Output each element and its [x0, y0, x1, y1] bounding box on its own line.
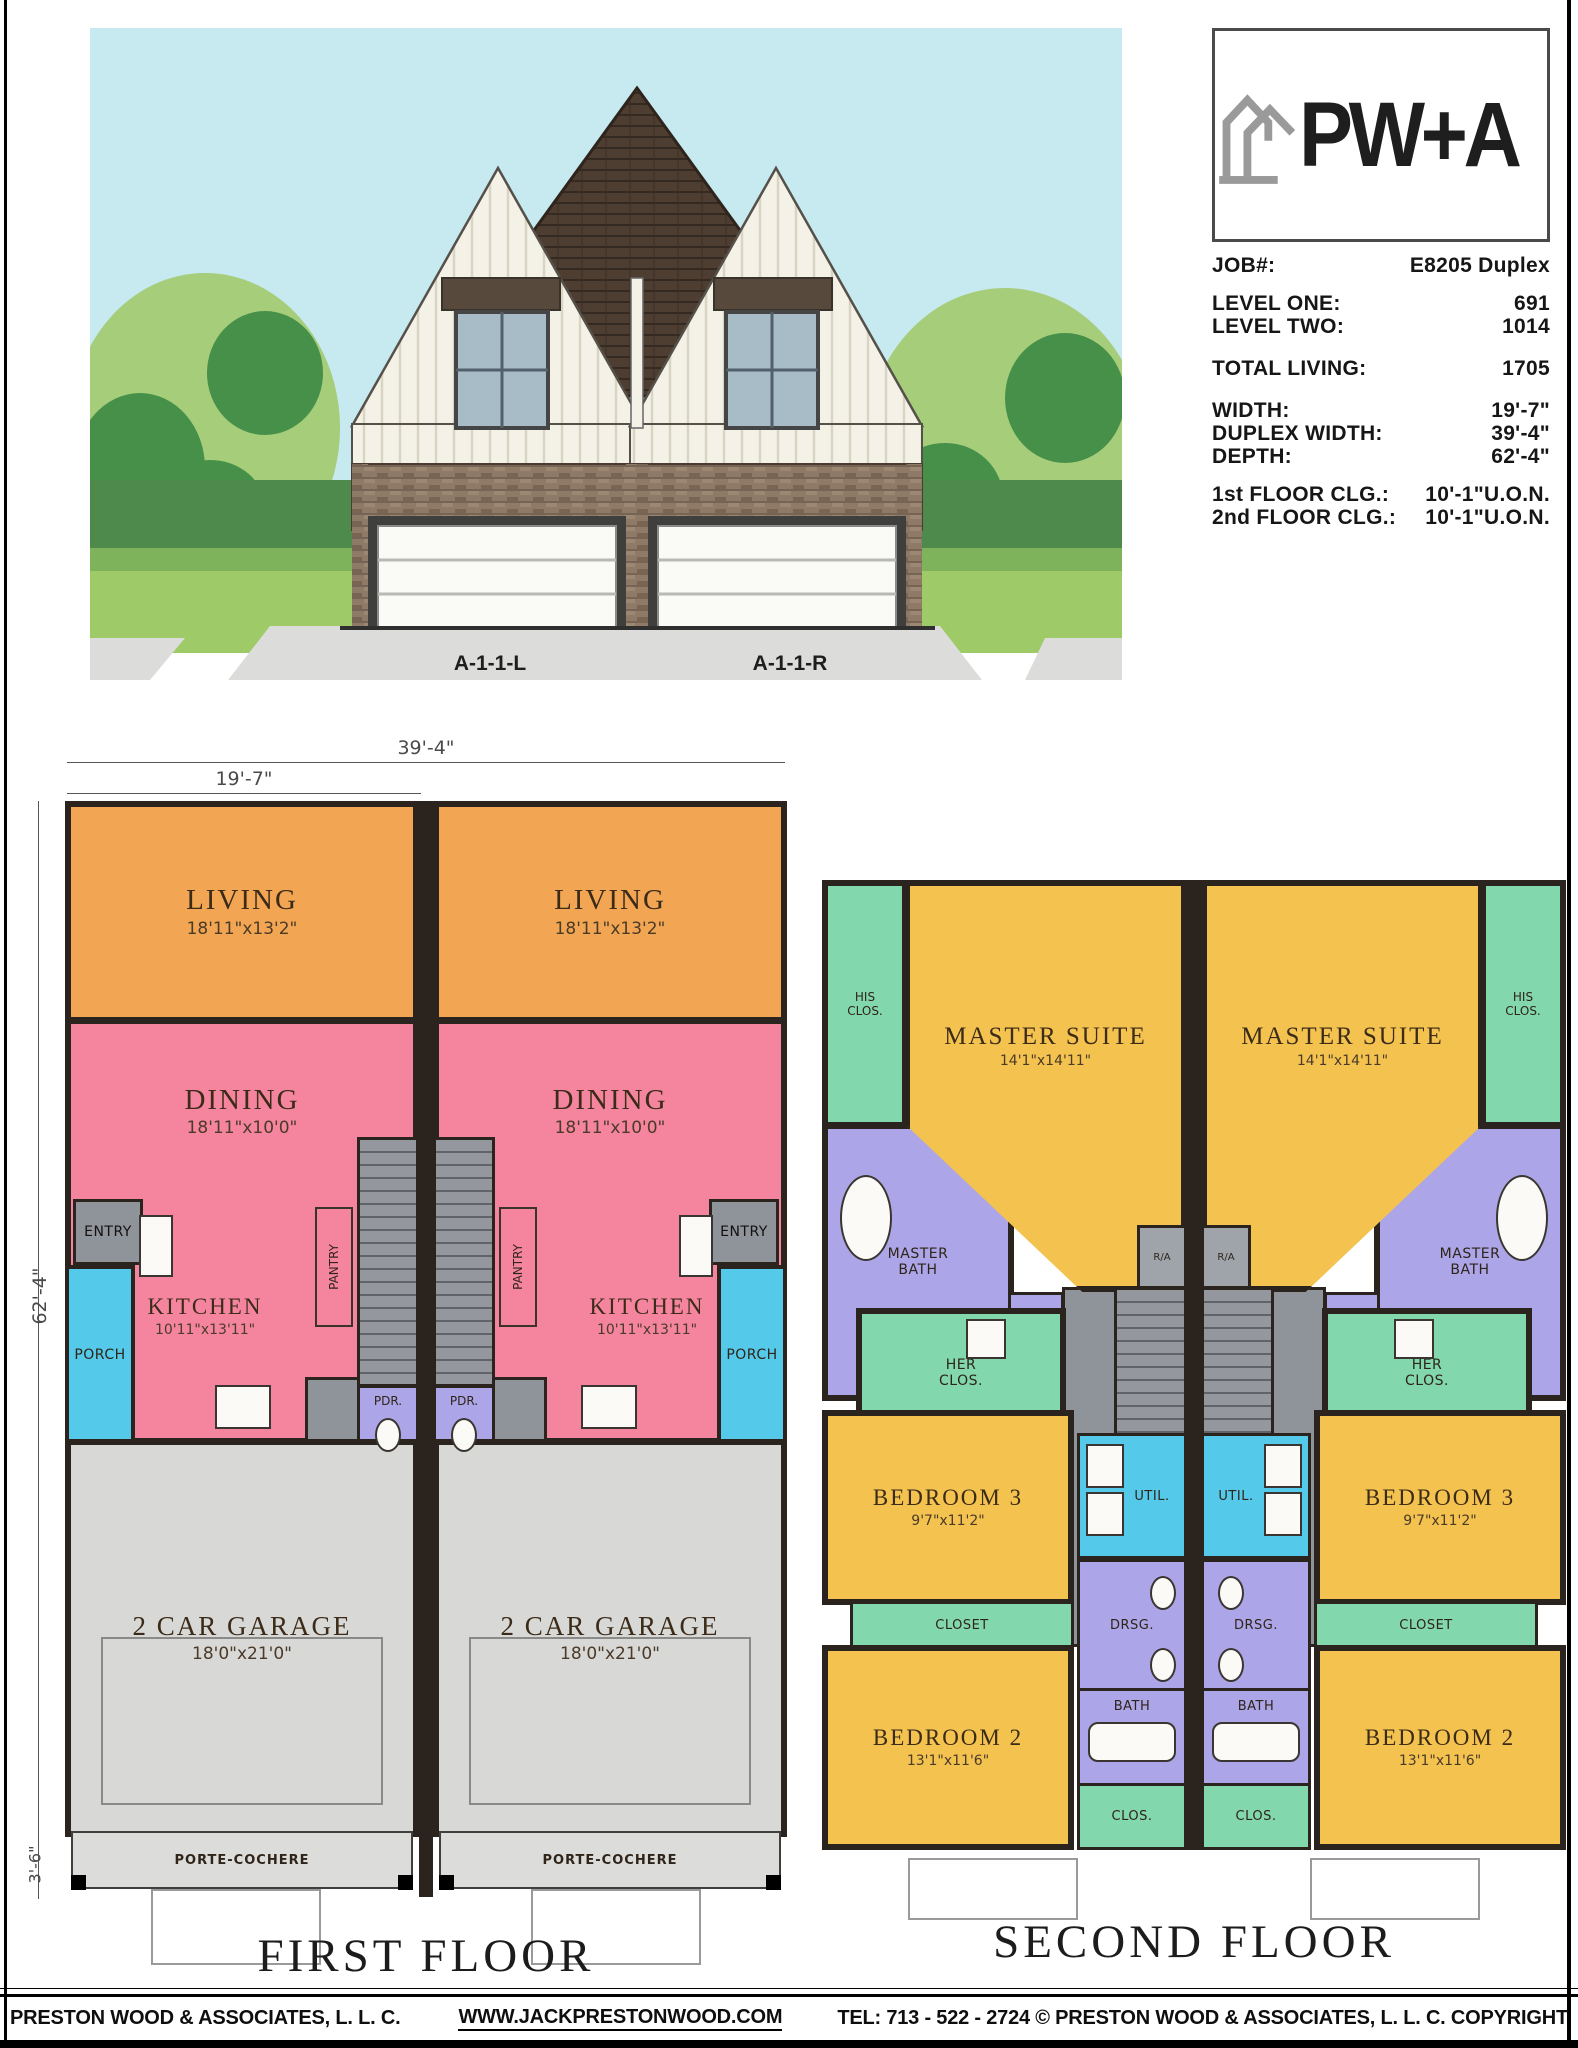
room-label: UTIL.	[1134, 1489, 1169, 1504]
stairs-right	[433, 1137, 495, 1387]
room-bedroom3-right: BEDROOM 3 9'7"x11'2"	[1314, 1410, 1566, 1605]
walkway-left	[908, 1858, 1078, 1920]
post	[71, 1875, 86, 1890]
post	[439, 1875, 454, 1890]
spec-row-level-one: LEVEL ONE: 691	[1212, 292, 1550, 315]
room-label: HER CLOS.	[931, 1357, 991, 1389]
sink-icon	[1150, 1576, 1176, 1610]
spec-row-level-two: LEVEL TWO: 1014	[1212, 315, 1550, 338]
spec-value: 62'-4"	[1491, 445, 1550, 468]
room-bath-left: BATH	[1077, 1688, 1187, 1786]
room-label: MASTER SUITE	[1241, 1024, 1443, 1050]
car-pad	[469, 1637, 751, 1805]
dim-line	[67, 762, 785, 763]
first-floor-plan: 39'-4" 19'-7" 62'-4" 3'-6" LIVING 18'11"…	[65, 737, 787, 1997]
spec-label: WIDTH:	[1212, 399, 1290, 422]
room-label: PORTE-COCHERE	[175, 1853, 310, 1868]
washer-icon	[1086, 1444, 1124, 1488]
page-border-left	[4, 0, 7, 2048]
kitchen-sink-icon	[139, 1215, 173, 1277]
spec-row-depth: DEPTH: 62'-4"	[1212, 445, 1550, 468]
room-his-closet-left: HIS CLOS.	[822, 880, 908, 1128]
room-label: DRSG.	[1234, 1618, 1278, 1633]
room-entry-left: ENTRY	[73, 1199, 143, 1265]
stairs-left	[357, 1137, 419, 1387]
room-label: PDR.	[450, 1394, 478, 1408]
right-garage-door	[648, 516, 906, 628]
room-label: HIS CLOS.	[840, 990, 890, 1018]
room-label: BEDROOM 2	[1365, 1726, 1515, 1750]
room-label: CLOSET	[1399, 1618, 1453, 1633]
tub-icon	[1212, 1722, 1300, 1762]
washer-icon	[1264, 1444, 1302, 1488]
room-label: DRSG.	[1110, 1618, 1154, 1633]
room-bath-right: BATH	[1201, 1688, 1311, 1786]
spec-table: JOB#: E8205 Duplex LEVEL ONE: 691 LEVEL …	[1212, 254, 1550, 529]
spec-value: 1014	[1502, 315, 1550, 338]
room-dim: 18'11"x10'0"	[555, 1118, 666, 1138]
footer-rule	[0, 1988, 1578, 1989]
spec-label: 2nd FLOOR CLG.:	[1212, 506, 1396, 529]
spec-row-second-clg: 2nd FLOOR CLG.: 10'-1"U.O.N.	[1212, 506, 1550, 529]
spec-value: 10'-1"U.O.N.	[1425, 506, 1550, 529]
spec-row-first-clg: 1st FLOOR CLG.: 10'-1"U.O.N.	[1212, 483, 1550, 506]
spec-row-total-living: TOTAL LIVING: 1705	[1212, 357, 1550, 380]
room-label: ENTRY	[720, 1224, 768, 1240]
room-entry-right: ENTRY	[709, 1199, 779, 1265]
return-air-left: R/A	[1137, 1225, 1187, 1289]
footer-telephone: TEL: 713 - 522 - 2724	[837, 2007, 1030, 2030]
brick-pier-right	[906, 464, 922, 628]
tub-icon	[1496, 1175, 1548, 1261]
spec-value: 10'-1"U.O.N.	[1425, 483, 1550, 506]
room-dim: 18'11"x13'2"	[555, 919, 666, 939]
room-dim: 18'11"x10'0"	[187, 1118, 298, 1138]
party-wall	[419, 801, 433, 1897]
pwa-logo-box: PW+A	[1212, 28, 1550, 242]
room-label: CLOSET	[935, 1618, 989, 1633]
post	[766, 1875, 781, 1890]
spec-row-job: JOB#: E8205 Duplex	[1212, 254, 1550, 277]
dim-porte: 3'-6"	[26, 1815, 45, 1915]
second-floor-plan: MASTER BATH MASTER SUITE 14'1"x14'11" HI…	[822, 880, 1566, 2048]
room-label: BEDROOM 2	[873, 1726, 1023, 1750]
room-dim: 14'1"x14'11"	[1000, 1053, 1091, 1069]
room-label: CLOS.	[1112, 1809, 1153, 1824]
right-window	[726, 312, 818, 428]
room-label: KITCHEN	[148, 1295, 263, 1319]
tub-icon	[1088, 1722, 1176, 1762]
room-dim: 10'11"x13'11"	[155, 1322, 255, 1338]
dining-label-left: DINING 18'11"x10'0"	[65, 1085, 419, 1138]
stove-icon	[215, 1385, 271, 1429]
spec-row-width: WIDTH: 19'-7"	[1212, 399, 1550, 422]
room-label: DINING	[552, 1085, 667, 1115]
dryer-icon	[1264, 1492, 1302, 1536]
spec-label: 1st FLOOR CLG.:	[1212, 483, 1389, 506]
spec-label: LEVEL TWO:	[1212, 315, 1344, 338]
room-label: UTIL.	[1218, 1489, 1253, 1504]
room-label: LIVING	[186, 885, 298, 915]
dining-label-right: DINING 18'11"x10'0"	[433, 1085, 787, 1138]
sink-icon	[1218, 1576, 1244, 1610]
first-floor-title: FIRST FLOOR	[65, 1929, 787, 1983]
spec-row-duplex-width: DUPLEX WIDTH: 39'-4"	[1212, 422, 1550, 445]
left-window	[456, 312, 548, 428]
room-label: HIS CLOS.	[1498, 990, 1548, 1018]
room-label: R/A	[1217, 1252, 1234, 1263]
tub-icon	[840, 1175, 892, 1261]
spec-value: E8205 Duplex	[1410, 254, 1550, 277]
brick-pier-center	[626, 464, 648, 628]
downspout	[631, 278, 643, 428]
brick-pier-left	[352, 464, 368, 628]
room-label: PORCH	[74, 1347, 125, 1363]
room-garage-left: 2 CAR GARAGE 18'0"x21'0"	[65, 1439, 419, 1837]
room-label: DINING	[184, 1085, 299, 1115]
return-air-right: R/A	[1201, 1225, 1251, 1289]
room-label: PANTRY	[511, 1244, 525, 1290]
room-label: BATH	[1238, 1699, 1275, 1714]
room-label: PDR.	[374, 1394, 402, 1408]
second-floor-title: SECOND FLOOR	[822, 1915, 1566, 1969]
room-dim: 13'1"x11'6"	[1399, 1753, 1481, 1769]
room-dim: 18'11"x13'2"	[187, 919, 298, 939]
room-garage-right: 2 CAR GARAGE 18'0"x21'0"	[433, 1439, 787, 1837]
room-dim: 9'7"x11'2"	[1403, 1513, 1476, 1529]
dim-total-width: 39'-4"	[65, 737, 787, 759]
sink-icon	[1218, 1648, 1244, 1682]
room-bedroom2-right: BEDROOM 2 13'1"x11'6"	[1314, 1645, 1566, 1850]
footer-company: PRESTON WOOD & ASSOCIATES, L. L. C.	[10, 2007, 400, 2030]
kitchen-label-left: KITCHEN 10'11"x13'11"	[85, 1295, 325, 1338]
room-label: BATH	[1114, 1699, 1151, 1714]
party-wall	[1187, 880, 1201, 1850]
footer-copyright: © PRESTON WOOD & ASSOCIATES, L. L. C. CO…	[1035, 2007, 1568, 2030]
room-bedroom3-left: BEDROOM 3 9'7"x11'2"	[822, 1410, 1074, 1605]
room-utility-right: UTIL.	[1201, 1433, 1311, 1559]
kitchen-sink-icon	[679, 1215, 713, 1277]
stove-icon	[581, 1385, 637, 1429]
room-label: PORTE-COCHERE	[543, 1853, 678, 1868]
room-closet-left: CLOSET	[850, 1601, 1074, 1649]
room-closet-right: CLOSET	[1314, 1601, 1538, 1649]
room-his-closet-right: HIS CLOS.	[1480, 880, 1566, 1128]
dim-line	[67, 793, 421, 794]
stairs2-left	[1114, 1287, 1187, 1437]
room-clos-left: CLOS.	[1077, 1783, 1187, 1850]
room-dim: 13'1"x11'6"	[907, 1753, 989, 1769]
shower-icon	[966, 1319, 1006, 1359]
room-label: MASTER BATH	[1425, 1246, 1515, 1278]
kitchen-label-right: KITCHEN 10'11"x13'11"	[527, 1295, 767, 1338]
spec-value: 39'-4"	[1491, 422, 1550, 445]
footer-website-link[interactable]: WWW.JACKPRESTONWOOD.COM	[458, 2006, 782, 2031]
pwa-houses-icon	[1215, 38, 1299, 233]
walkway-right	[1310, 1858, 1480, 1920]
page-border-right	[1567, 0, 1571, 2048]
room-dim: 14'1"x14'11"	[1297, 1053, 1388, 1069]
room-label: ENTRY	[84, 1224, 132, 1240]
spec-label: JOB#:	[1212, 254, 1275, 277]
room-clos-right: CLOS.	[1201, 1783, 1311, 1850]
room-label: KITCHEN	[590, 1295, 705, 1319]
room-label: PORCH	[726, 1347, 777, 1363]
room-label: HER CLOS.	[1397, 1357, 1457, 1389]
dim-depth: 62'-4"	[29, 1246, 51, 1346]
room-porch-left: PORCH	[65, 1265, 135, 1445]
room-label: MASTER BATH	[873, 1246, 963, 1278]
room-label: BEDROOM 3	[1365, 1486, 1515, 1510]
spec-value: 691	[1514, 292, 1550, 315]
room-porte-cochere-left: PORTE-COCHERE	[71, 1831, 413, 1889]
toilet-icon	[375, 1418, 401, 1452]
room-living-right: LIVING 18'11"x13'2"	[433, 801, 787, 1023]
right-awning	[714, 278, 832, 310]
room-porte-cochere-right: PORTE-COCHERE	[439, 1831, 781, 1889]
room-living-left: LIVING 18'11"x13'2"	[65, 801, 419, 1023]
dryer-icon	[1086, 1492, 1124, 1536]
footer-black-band	[0, 2040, 1578, 2048]
spec-label: LEVEL ONE:	[1212, 292, 1341, 315]
room-label: LIVING	[554, 885, 666, 915]
room-label: CLOS.	[1236, 1809, 1277, 1824]
toilet-icon	[451, 1418, 477, 1452]
footer: PRESTON WOOD & ASSOCIATES, L. L. C. WWW.…	[0, 1994, 1578, 2040]
pwa-wordmark: PW+A	[1299, 89, 1518, 181]
room-porch-right: PORCH	[717, 1265, 787, 1445]
spec-value: 19'-7"	[1491, 399, 1550, 422]
room-dim: 9'7"x11'2"	[911, 1513, 984, 1529]
front-elevation-rendering: A-1-1-L A-1-1-R	[90, 28, 1122, 680]
spec-label: TOTAL LIVING:	[1212, 357, 1366, 380]
spec-value: 1705	[1502, 357, 1550, 380]
shower-icon	[1394, 1319, 1434, 1359]
post	[398, 1875, 413, 1890]
room-dim: 10'11"x13'11"	[597, 1322, 697, 1338]
room-label: MASTER SUITE	[944, 1024, 1146, 1050]
car-pad	[101, 1637, 383, 1805]
room-label: R/A	[1153, 1252, 1170, 1263]
stairs2-right	[1201, 1287, 1274, 1437]
elevation-label-right: A-1-1-R	[753, 652, 828, 675]
spec-label: DUPLEX WIDTH:	[1212, 422, 1383, 445]
room-bedroom2-left: BEDROOM 2 13'1"x11'6"	[822, 1645, 1074, 1850]
room-utility-left: UTIL.	[1077, 1433, 1187, 1559]
room-label: BEDROOM 3	[873, 1486, 1023, 1510]
sink-icon	[1150, 1648, 1176, 1682]
left-garage-door	[368, 516, 626, 628]
room-dressing-left: DRSG.	[1077, 1559, 1187, 1691]
left-awning	[442, 278, 560, 310]
plan-sheet: A-1-1-L A-1-1-R PW+A JOB#: E8205 Duplex …	[0, 0, 1578, 2048]
spec-label: DEPTH:	[1212, 445, 1292, 468]
dim-unit-width: 19'-7"	[65, 768, 423, 790]
room-label: PANTRY	[327, 1244, 341, 1290]
elevation-label-left: A-1-1-L	[454, 652, 527, 675]
room-dressing-right: DRSG.	[1201, 1559, 1311, 1691]
